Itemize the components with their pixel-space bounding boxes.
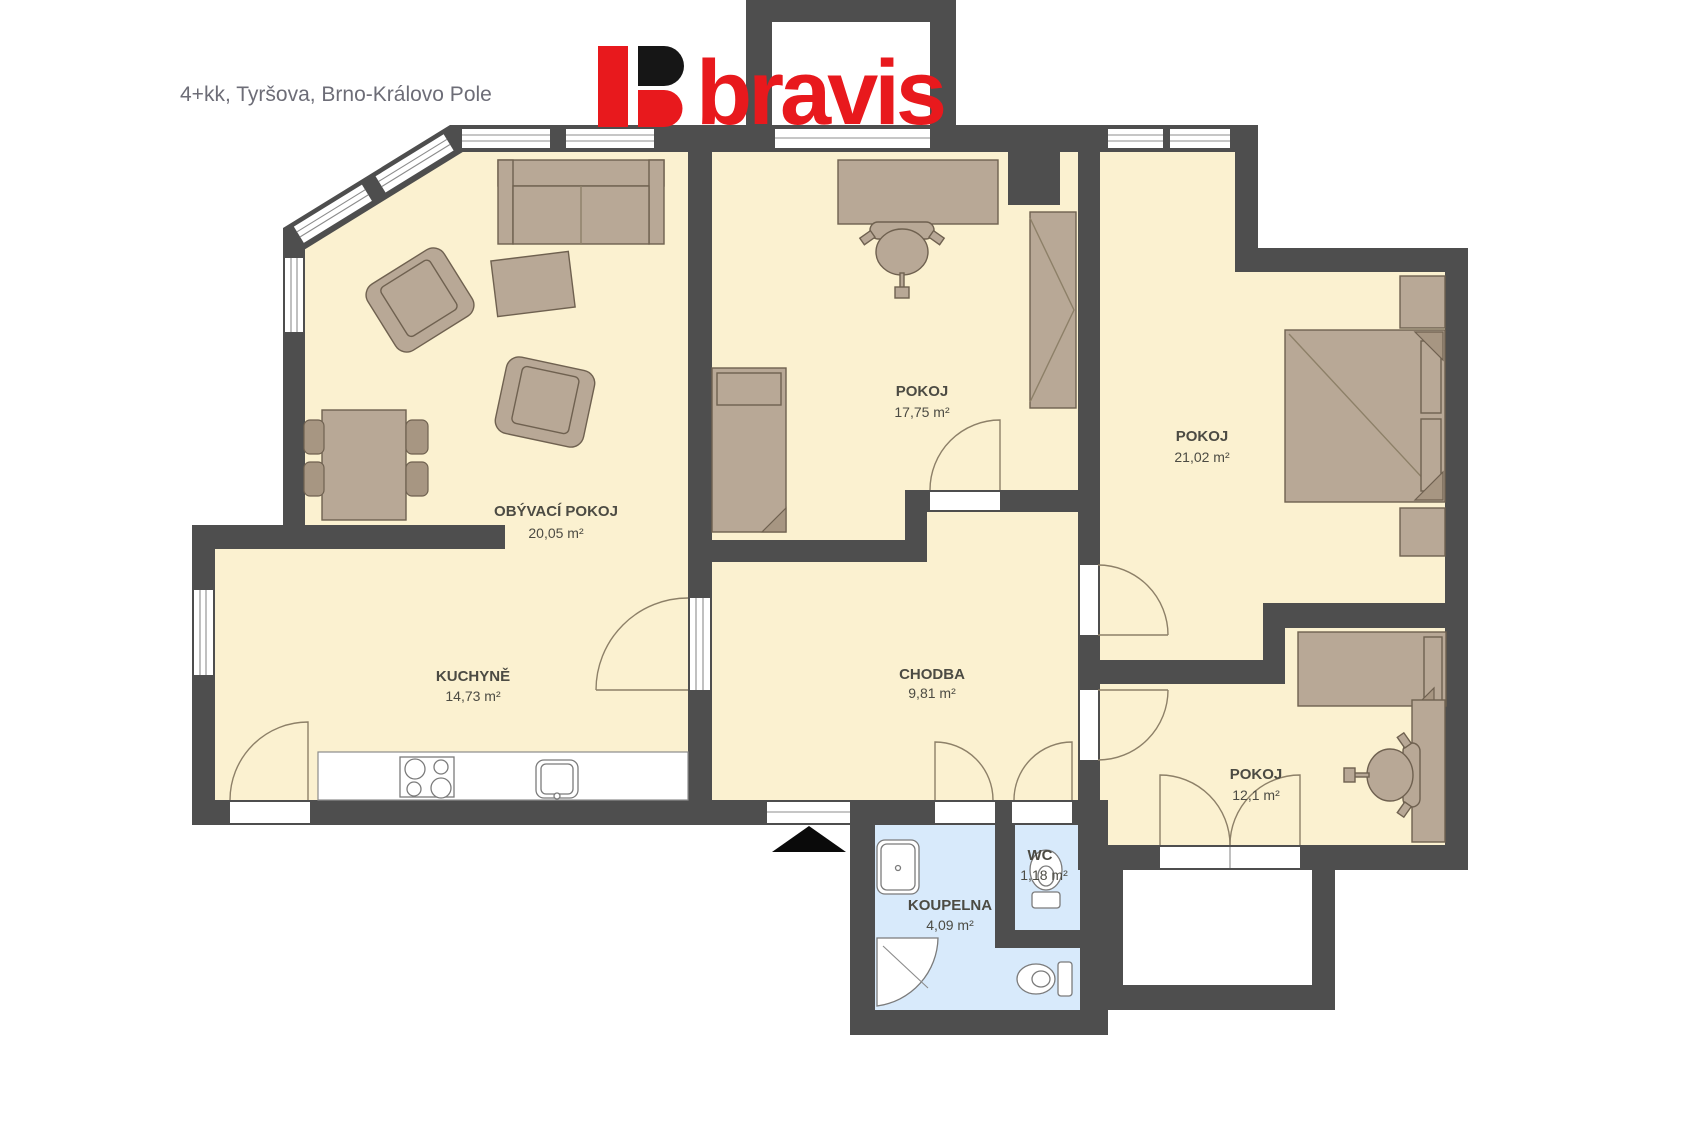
room-label-hall: CHODBA <box>899 666 965 683</box>
room-area-bathroom: 4,09 m² <box>926 917 974 933</box>
balcony-door-opening <box>1160 847 1300 868</box>
door-opening-right-room <box>1080 565 1098 635</box>
window <box>1108 129 1163 148</box>
room-label-middle: POKOJ <box>896 383 949 400</box>
window <box>1170 129 1230 148</box>
room-label-bottom-right: POKOJ <box>1230 766 1283 783</box>
wall-balcony <box>746 0 956 22</box>
wall-right-outer <box>1445 248 1468 870</box>
double-bed <box>1285 330 1445 502</box>
window <box>462 129 550 148</box>
dining-chair <box>304 420 324 454</box>
coffee-table <box>491 251 575 316</box>
dining-chair <box>304 462 324 496</box>
window <box>194 590 213 675</box>
logo-wordmark: bravis <box>696 42 944 144</box>
room-area-right: 21,02 m² <box>1174 449 1230 465</box>
logo-b-bottom-icon <box>638 90 683 127</box>
page-title: 4+kk, Tyršova, Brno-Královo Pole <box>180 83 492 106</box>
wall <box>1235 248 1468 272</box>
room-area-living: 20,05 m² <box>528 525 584 541</box>
wardrobe <box>1400 276 1445 328</box>
single-bed <box>1298 632 1446 706</box>
sink <box>536 760 578 799</box>
wardrobe <box>1030 212 1076 408</box>
pillow <box>717 373 781 405</box>
wall-living-middle-separator <box>688 125 712 825</box>
nightstand <box>1400 508 1445 556</box>
door-opening-wc <box>1012 802 1072 823</box>
door-opening-middle-room <box>930 492 1000 510</box>
room-label-bathroom: KOUPELNA <box>908 897 992 914</box>
room-label-right: POKOJ <box>1176 428 1229 445</box>
entrance-door <box>767 802 850 823</box>
kitchen-counter <box>318 752 688 800</box>
wall <box>1263 603 1468 628</box>
logo-bar-icon <box>598 46 628 127</box>
wall <box>1100 660 1285 684</box>
wall-terrace <box>1100 985 1335 1010</box>
stove <box>400 757 454 798</box>
room-area-middle: 17,75 m² <box>894 404 950 420</box>
room-label-kitchen: KUCHYNĚ <box>436 667 510 685</box>
sofa <box>498 160 664 244</box>
dining-chair <box>406 420 428 454</box>
floor-plan-page: OBÝVACÍ POKOJ 20,05 m² POKOJ 17,75 m² PO… <box>0 0 1689 1124</box>
single-bed <box>712 368 786 532</box>
room-floors <box>192 140 1445 1035</box>
room-label-wc: WC <box>1028 847 1053 864</box>
entrance-arrow-icon <box>772 826 846 852</box>
door-opening-bathroom <box>935 802 995 823</box>
logo-b-top-icon <box>638 46 684 86</box>
wall-terrace <box>1312 870 1335 1010</box>
wall <box>1263 603 1285 684</box>
desk <box>838 160 998 224</box>
door-opening-kitchen-hall <box>690 598 710 690</box>
washbasin <box>877 840 919 894</box>
room-label-living: OBÝVACÍ POKOJ <box>494 502 618 520</box>
toilet <box>1017 962 1072 996</box>
dining-table <box>322 410 406 520</box>
door-opening-bottom-right-room <box>1080 690 1098 760</box>
wall <box>192 525 505 549</box>
window <box>566 129 654 148</box>
room-area-hall: 9,81 m² <box>908 685 956 701</box>
wall-hall-right-separator <box>1078 152 1100 870</box>
wall <box>905 512 927 562</box>
room-area-bottom-right: 12,1 m² <box>1232 787 1280 803</box>
wall <box>712 540 927 562</box>
room-area-kitchen: 14,73 m² <box>445 688 501 704</box>
room-area-wc: 1,18 m² <box>1020 867 1068 883</box>
window <box>285 258 303 332</box>
door-opening-kitchen-balcony <box>230 802 310 823</box>
floor-plan: OBÝVACÍ POKOJ 20,05 m² POKOJ 17,75 m² PO… <box>0 0 1689 1124</box>
dining-chair <box>406 462 428 496</box>
